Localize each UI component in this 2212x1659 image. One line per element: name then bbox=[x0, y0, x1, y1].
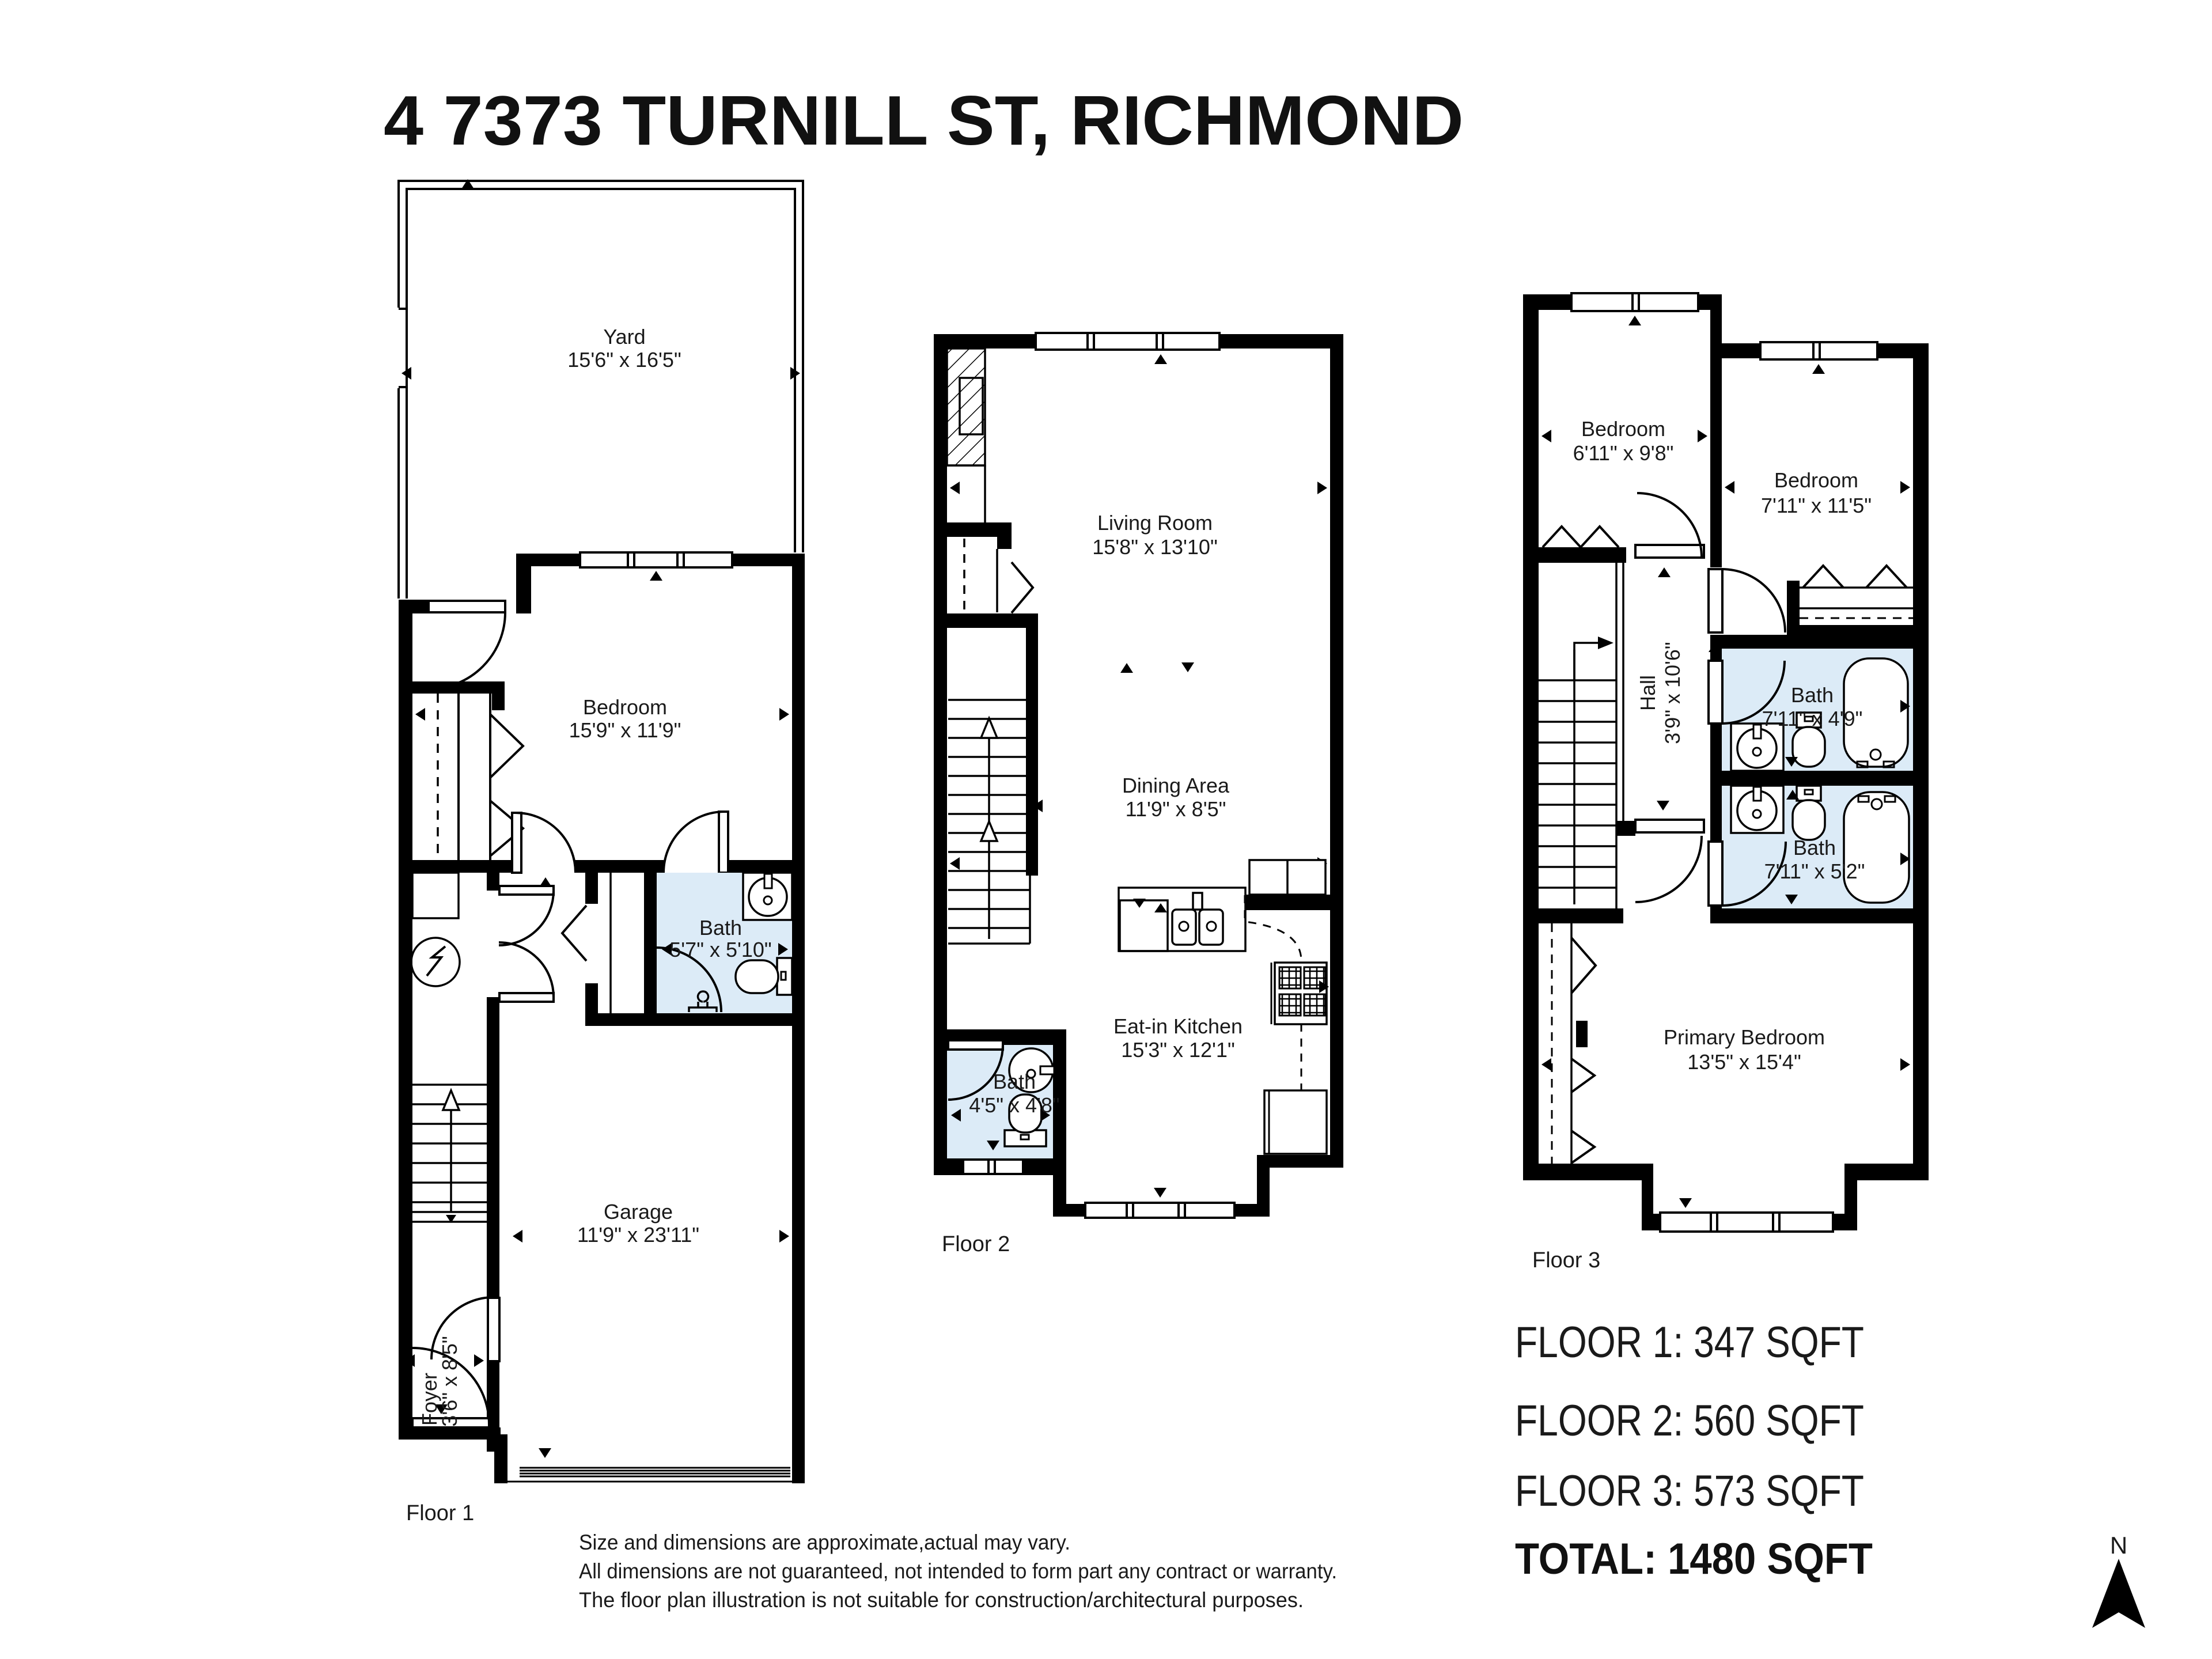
svg-text:TOTAL: 1480 SQFT: TOTAL: 1480 SQFT bbox=[1515, 1535, 1873, 1584]
svg-text:Floor 1: Floor 1 bbox=[406, 1501, 474, 1525]
svg-text:Size and dimensions are approx: Size and dimensions are approximate,actu… bbox=[579, 1531, 1070, 1554]
svg-text:Bedroom: Bedroom bbox=[583, 695, 667, 719]
svg-text:15'9" x 11'9": 15'9" x 11'9" bbox=[569, 718, 681, 742]
svg-text:Bath: Bath bbox=[1793, 836, 1836, 859]
svg-text:Floor 2: Floor 2 bbox=[942, 1232, 1010, 1256]
svg-text:7'11" x 5'2": 7'11" x 5'2" bbox=[1764, 859, 1865, 883]
svg-text:Yard: Yard bbox=[603, 325, 645, 349]
svg-text:4'5" x 4'8": 4'5" x 4'8" bbox=[969, 1093, 1059, 1117]
svg-text:11'9" x 8'5": 11'9" x 8'5" bbox=[1126, 797, 1226, 821]
svg-text:15'6" x 16'5": 15'6" x 16'5" bbox=[567, 348, 681, 372]
svg-text:15'3" x 12'1": 15'3" x 12'1" bbox=[1121, 1038, 1234, 1062]
svg-text:15'8" x 13'10": 15'8" x 13'10" bbox=[1092, 535, 1217, 559]
svg-text:6'11" x 9'8": 6'11" x 9'8" bbox=[1573, 441, 1674, 465]
svg-text:The floor plan illustration is: The floor plan illustration is not suita… bbox=[579, 1588, 1304, 1612]
svg-text:Hall: Hall bbox=[1636, 675, 1660, 711]
svg-text:FLOOR 2: 560 SQFT: FLOOR 2: 560 SQFT bbox=[1515, 1396, 1864, 1445]
svg-text:Eat-in Kitchen: Eat-in Kitchen bbox=[1113, 1014, 1243, 1038]
svg-text:7'11" x 4'9": 7'11" x 4'9" bbox=[1762, 707, 1863, 730]
svg-text:3'9" x 10'6": 3'9" x 10'6" bbox=[1661, 642, 1684, 744]
svg-text:5'7" x 5'10": 5'7" x 5'10" bbox=[669, 938, 771, 961]
svg-text:3'6" x 8'5": 3'6" x 8'5" bbox=[438, 1336, 461, 1426]
svg-text:Bedroom: Bedroom bbox=[1774, 468, 1858, 492]
svg-text:Bedroom: Bedroom bbox=[1581, 417, 1665, 441]
svg-text:7'11" x 11'5": 7'11" x 11'5" bbox=[1761, 494, 1872, 517]
svg-text:Dining Area: Dining Area bbox=[1122, 774, 1230, 797]
svg-text:Living Room: Living Room bbox=[1097, 511, 1213, 535]
svg-text:Bath: Bath bbox=[699, 916, 742, 940]
svg-text:FLOOR 1: 347 SQFT: FLOOR 1: 347 SQFT bbox=[1515, 1318, 1864, 1367]
svg-text:N: N bbox=[2110, 1532, 2127, 1559]
svg-text:Floor 3: Floor 3 bbox=[1532, 1248, 1600, 1272]
svg-text:4 7373 TURNILL ST, RICHMOND: 4 7373 TURNILL ST, RICHMOND bbox=[384, 81, 1464, 160]
svg-text:11'9" x 23'11": 11'9" x 23'11" bbox=[577, 1223, 699, 1247]
svg-text:Primary Bedroom: Primary Bedroom bbox=[1664, 1025, 1825, 1049]
svg-text:Garage: Garage bbox=[604, 1200, 673, 1224]
svg-text:Bath: Bath bbox=[1791, 683, 1834, 707]
svg-text:FLOOR 3: 573 SQFT: FLOOR 3: 573 SQFT bbox=[1515, 1467, 1864, 1516]
svg-text:Bath: Bath bbox=[993, 1070, 1036, 1093]
svg-text:All dimensions are not guarant: All dimensions are not guaranteed, not i… bbox=[579, 1559, 1337, 1583]
svg-text:13'5" x 15'4": 13'5" x 15'4" bbox=[1687, 1050, 1801, 1074]
